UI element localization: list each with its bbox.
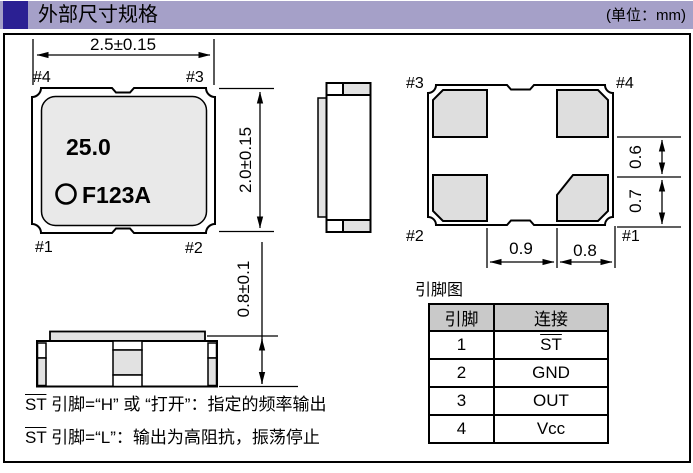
front-view-center-top (113, 341, 142, 350)
top-view-pin4-label: #4 (33, 69, 51, 86)
bottom-view-pin3-label: #3 (406, 75, 424, 92)
top-view: 25.0 F123A #4 #3 #1 #2 2.5±0.15 2.0±0.15 (32, 35, 274, 257)
bottom-view-pin1-label: #1 (622, 228, 640, 245)
top-view-pin3-label: #3 (186, 69, 204, 86)
connection-value: GND (532, 363, 570, 382)
front-view-center-terminal (113, 350, 142, 375)
bottom-view-pin4-label: #4 (616, 75, 634, 92)
dim-thickness-label: 0.8±0.1 (234, 261, 253, 318)
front-view-right-castellation (208, 343, 217, 358)
note-text: 引脚=“H” 或 “打开”：指定的频率输出 (46, 395, 326, 414)
pin-row-3: 3 OUT (429, 387, 608, 415)
front-view-right-terminal (208, 358, 217, 386)
pin-number: 3 (429, 387, 494, 415)
marking-code: F123A (82, 182, 151, 208)
pin-table-header-row: 引脚 连接 (429, 304, 608, 331)
connection-value: Vcc (537, 419, 565, 438)
dim-gap-vertical-label: 0.6 (626, 145, 645, 169)
pin-table: 引脚 连接 1 ST 2 GND 3 OUT 4 Vcc (428, 303, 609, 444)
pin-row-4: 4 Vcc (429, 415, 608, 443)
pin-connection: GND (494, 359, 608, 387)
bottom-view: #3 #4 #2 #1 0.9 0.8 0.6 0.7 (406, 75, 681, 268)
pad-3 (433, 90, 487, 137)
side-view-bottom-cap-right (343, 220, 371, 232)
datasheet-dimension-section: 外部尺寸规格 (单位：mm) 25.0 F123A #4 #3 #1 #2 2.… (0, 0, 693, 473)
dim-height-label: 2.0±0.15 (236, 127, 255, 193)
pin-row-1: 1 ST (429, 331, 608, 359)
pin-table-title: 引脚图 (415, 276, 609, 300)
pin-number: 2 (429, 359, 494, 387)
side-view (318, 83, 371, 232)
front-view-left-castellation (38, 343, 47, 358)
dim-width-label: 2.5±0.15 (90, 35, 156, 54)
pin-row-2: 2 GND (429, 359, 608, 387)
dim-pad-height-label: 0.7 (626, 189, 645, 213)
pin1-indicator-circle (57, 185, 76, 204)
top-view-pin1-label: #1 (35, 239, 53, 256)
pad-4 (557, 90, 608, 137)
front-view: 0.8±0.1 (37, 242, 298, 387)
front-view-center-bottom (113, 375, 142, 387)
top-view-pin2-label: #2 (185, 240, 203, 257)
note-line-2: ST 引脚=“L”：输出为高阻抗，振荡停止 (25, 427, 326, 448)
pin-connection: OUT (494, 387, 608, 415)
side-view-top-cap-left (327, 83, 344, 95)
side-view-body (327, 95, 371, 220)
bottom-view-pin2-label: #2 (406, 228, 424, 245)
pin-table-section: 引脚图 引脚 连接 1 ST 2 GND 3 OUT 4 Vcc (414, 276, 609, 444)
marking-frequency: 25.0 (66, 134, 111, 160)
front-view-lid (50, 332, 205, 342)
pin-number: 1 (429, 331, 494, 359)
dim-pad-gap-label: 0.9 (509, 239, 533, 258)
note-line-1: ST 引脚=“H” 或 “打开”：指定的频率输出 (25, 394, 326, 415)
pin-connection: ST (494, 331, 608, 359)
front-view-left-terminal (38, 358, 47, 386)
pin-connection: Vcc (494, 415, 608, 443)
st-signal-label: ST (25, 428, 46, 447)
side-view-bottom-cap-left (327, 220, 344, 232)
st-signal-label: ST (25, 395, 46, 414)
pin-column-header: 引脚 (429, 304, 494, 331)
dim-pad-width-label: 0.8 (573, 241, 597, 260)
connection-value: OUT (533, 391, 569, 410)
connection-column-header: 连接 (494, 304, 608, 331)
connection-value: ST (540, 335, 562, 354)
st-function-notes: ST 引脚=“H” 或 “打开”：指定的频率输出 ST 引脚=“L”：输出为高阻… (25, 394, 326, 460)
side-view-crystal-plate (318, 98, 327, 217)
side-view-top-cap-right (343, 83, 371, 95)
pad-2 (433, 175, 487, 221)
pin-number: 4 (429, 415, 494, 443)
note-text: 引脚=“L”：输出为高阻抗，振荡停止 (46, 428, 319, 447)
